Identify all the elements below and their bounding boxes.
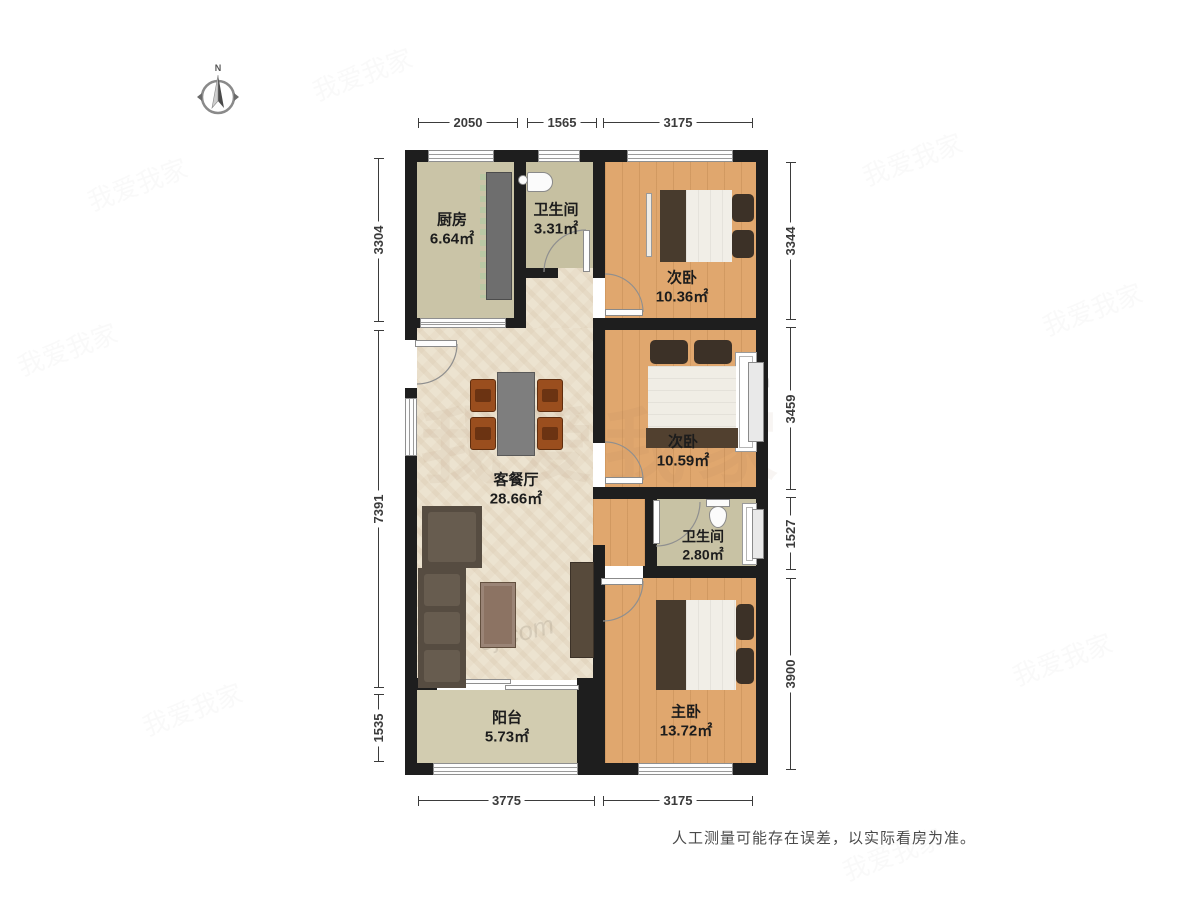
dim-top-3: 3175 (603, 122, 753, 123)
bathroom1-faucet (518, 175, 528, 185)
master-door-leaf (601, 578, 643, 585)
bed-pillow (736, 604, 754, 640)
compass-west-arrow (197, 93, 202, 101)
compass: N (193, 60, 243, 122)
bedroom2-door-leaf (605, 477, 643, 484)
dim-left-2: 7391 (378, 330, 379, 688)
watermark-tile: 我爱我家 (12, 313, 122, 383)
wall-master-top-b (643, 566, 768, 578)
bed-mattress (686, 190, 732, 262)
watermark-tile: 我爱我家 (82, 148, 192, 218)
dim-bottom-2: 3175 (603, 800, 753, 801)
bed-pillow (694, 340, 732, 364)
coffee-table (480, 582, 516, 648)
compass-needle-light (212, 75, 218, 108)
room-label-balcony: 阳台 5.73㎡ (485, 710, 529, 747)
room-area: 28.66㎡ (490, 491, 543, 509)
bedroom1-bed (646, 188, 756, 264)
bed-mattress (648, 366, 736, 428)
watermark-tile: 我爱我家 (137, 673, 247, 743)
room-label-bathroom2: 卫生间 2.80㎡ (682, 529, 724, 564)
window-living-left (405, 398, 417, 456)
dining-chair (537, 379, 563, 412)
window-kitchen-top (428, 150, 494, 162)
compass-east-arrow (234, 93, 239, 101)
room-area: 10.36㎡ (656, 289, 709, 307)
wall-balcony-right (577, 678, 605, 775)
wall-left-mid (405, 388, 417, 398)
dim-value: 3175 (660, 116, 697, 130)
room-name: 卫生间 (533, 202, 578, 220)
wall-bed2-hall (593, 487, 768, 499)
wall-living-bedrooms-b (593, 318, 605, 443)
dim-right-3: 1527 (790, 497, 791, 570)
dim-value: 3459 (784, 390, 798, 427)
disclaimer-text: 人工测量可能存在误差，以实际看房为准。 (672, 827, 976, 848)
window-kitchen-pass (420, 318, 506, 328)
room-name: 阳台 (492, 710, 522, 728)
sliding-door-panel-right (505, 685, 579, 690)
watermark-tile: 我爱我家 (1037, 273, 1147, 343)
room-label-bedroom1: 次卧 10.36㎡ (656, 270, 709, 307)
room-name: 客餐厅 (493, 472, 538, 490)
room-area: 10.59㎡ (657, 453, 710, 471)
bedroom2-bed (646, 336, 738, 448)
dim-value: 7391 (372, 491, 386, 528)
wall-right (756, 150, 768, 775)
kitchen-counter (486, 172, 512, 300)
window-bathroom1-top (538, 150, 580, 162)
compass-north-label: N (215, 63, 222, 73)
master-bed (650, 598, 756, 692)
room-label-living: 客餐厅 28.66㎡ (490, 472, 543, 509)
dim-right-4: 3900 (790, 578, 791, 770)
room-label-kitchen: 厨房 6.64㎡ (430, 212, 474, 249)
room-area: 6.64㎡ (430, 231, 474, 249)
bed-mattress (686, 600, 736, 690)
room-area: 3.31㎡ (534, 221, 578, 239)
dim-bottom-1: 3775 (418, 800, 595, 801)
sofa-cushion (428, 512, 476, 562)
sofa-cushion (424, 650, 460, 682)
bed-bench (646, 193, 652, 257)
window-master-bottom (638, 763, 733, 775)
wall-left-lower (405, 456, 417, 775)
dim-value: 3344 (784, 223, 798, 260)
room-label-bedroom2: 次卧 10.59㎡ (657, 434, 710, 471)
bathroom1-sink (527, 172, 553, 192)
dim-value: 2050 (450, 116, 487, 130)
compass-needle-dark (218, 75, 224, 108)
dim-right-1: 3344 (790, 162, 791, 320)
bed-pillow (732, 194, 754, 222)
dim-right-2: 3459 (790, 327, 791, 490)
floorplan-canvas: 我爱我家 我爱我家 我爱我家 我爱我家 我爱我家 我爱我家 我爱我家 我爱我家 … (0, 0, 1200, 900)
dim-top-2: 1565 (527, 122, 597, 123)
dining-chair (470, 417, 496, 450)
room-area: 2.80㎡ (682, 547, 723, 564)
dim-value: 3175 (660, 794, 697, 808)
room-label-master: 主卧 13.72㎡ (660, 704, 713, 741)
bed-pillow (736, 648, 754, 684)
watermark-tile: 我爱我家 (1007, 623, 1117, 693)
watermark-tile: 我爱我家 (857, 123, 967, 193)
dim-left-3: 1535 (378, 694, 379, 762)
bed-pillow (732, 230, 754, 258)
dim-value: 3900 (784, 656, 798, 693)
tv-stand (570, 562, 594, 658)
dim-value: 1527 (784, 515, 798, 552)
bathroom2-door-leaf (653, 500, 660, 544)
bedroom1-door-leaf (605, 309, 643, 316)
room-area: 5.73㎡ (485, 729, 529, 747)
watermark-tile: 我爱我家 (307, 38, 417, 108)
entrance-door-leaf (415, 340, 457, 347)
bay-window-bedroom2-glass (748, 362, 764, 442)
dim-left-1: 3304 (378, 158, 379, 322)
sofa-body (418, 568, 466, 688)
bed-pillow (650, 340, 688, 364)
room-name: 主卧 (671, 704, 701, 722)
dim-value: 1565 (544, 116, 581, 130)
window-bedroom1-top (627, 150, 733, 162)
dim-value: 3304 (372, 222, 386, 259)
wall-living-bedrooms-a (593, 150, 605, 278)
sofa-chaise (422, 506, 482, 568)
room-name: 次卧 (667, 270, 697, 288)
wall-bed1-bed2 (593, 318, 768, 330)
sofa-cushion (424, 612, 460, 644)
room-label-bathroom1: 卫生间 3.31㎡ (533, 202, 578, 239)
bed-blanket (660, 190, 686, 262)
window-balcony-bottom (433, 763, 578, 775)
wall-master-top-a (593, 566, 602, 578)
bed-blanket (656, 600, 686, 690)
dim-value: 3775 (488, 794, 525, 808)
dining-table (497, 372, 535, 456)
dim-value: 1535 (372, 710, 386, 747)
bathroom1-door-leaf (583, 230, 590, 272)
dim-top-1: 2050 (418, 122, 518, 123)
wall-bath1-bottom (514, 268, 558, 278)
dining-chair (470, 379, 496, 412)
room-name: 次卧 (668, 434, 698, 452)
sofa-cushion (424, 574, 460, 606)
room-name: 厨房 (437, 212, 467, 230)
room-name: 卫生间 (682, 529, 724, 546)
window-bathroom2-glass (752, 509, 764, 559)
room-area: 13.72㎡ (660, 723, 713, 741)
wall-left-upper (405, 150, 417, 340)
dining-chair (537, 417, 563, 450)
